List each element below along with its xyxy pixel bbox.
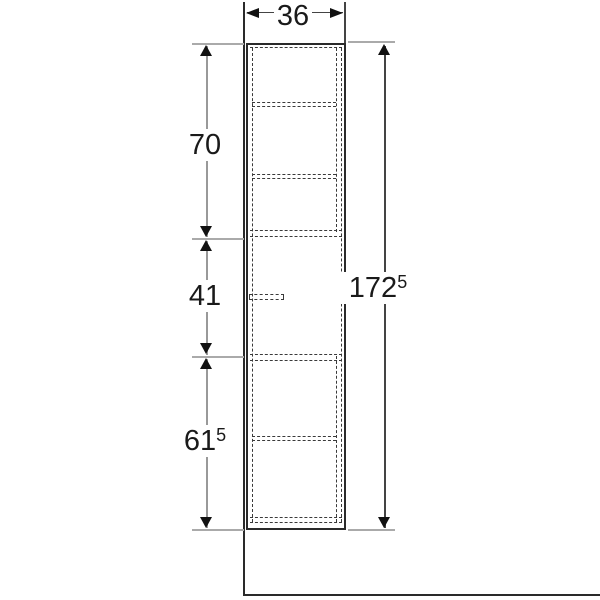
extension-line-top-right (348, 41, 395, 43)
extension-line-bottom-right (348, 529, 395, 531)
dim-section-615-sup: 5 (216, 425, 226, 445)
dim-label-section-70: 70 (175, 129, 235, 161)
shelf-dashed-line (252, 174, 336, 175)
arrow-down-icon (378, 517, 390, 528)
arrow-left-icon (246, 8, 259, 18)
arrow-up-icon (200, 45, 212, 56)
dim-section-70-value: 70 (189, 129, 221, 161)
shelf-dashed-line (252, 102, 336, 103)
cabinet-bottom-inner-line (250, 522, 342, 523)
cabinet-top-inner-line (250, 47, 342, 48)
section-divider-line (250, 230, 342, 231)
arrow-up-icon (378, 44, 390, 55)
cabinet-door-edge-line-top (336, 48, 337, 232)
dim-label-total-height: 1725 (338, 272, 418, 304)
shelf-dashed-line (252, 178, 336, 179)
shelf-dashed-line (252, 106, 336, 107)
arrow-down-icon (200, 343, 212, 354)
dim-label-section-615: 615 (170, 425, 240, 457)
small-shelf-dashed-outline (249, 294, 284, 300)
cabinet-door-edge-line-bottom (336, 356, 337, 522)
width-extension-line-right (344, 2, 346, 43)
arrow-up-icon (200, 358, 212, 369)
arrow-up-icon (200, 240, 212, 251)
cabinet-outline (246, 43, 346, 530)
technical-drawing-canvas: 36 70 41 615 (0, 0, 600, 600)
arrow-down-icon (200, 226, 212, 237)
dim-label-section-41: 41 (175, 280, 235, 312)
arrow-right-icon (330, 8, 343, 18)
extension-line-bottom (192, 529, 244, 531)
cabinet-bottom-inner-line (250, 517, 342, 518)
cabinet-inner-left-line (252, 48, 253, 522)
section-divider-line (250, 236, 342, 237)
dim-section-41-value: 41 (189, 280, 221, 312)
dim-label-width: 36 (274, 0, 312, 28)
shelf-dashed-line (252, 440, 336, 441)
dim-width-value: 36 (277, 0, 309, 32)
section-divider-line (250, 360, 342, 361)
dim-section-615-value: 61 (184, 425, 216, 457)
section-divider-line (250, 354, 342, 355)
dim-total-height-value: 172 (349, 272, 397, 304)
arrow-down-icon (200, 517, 212, 528)
shelf-dashed-line (252, 436, 336, 437)
dim-total-height-sup: 5 (397, 272, 407, 292)
